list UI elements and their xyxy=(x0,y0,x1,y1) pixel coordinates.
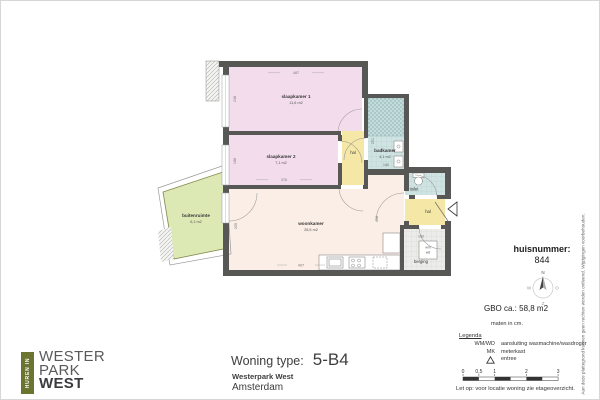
dim-slaapkamer2-breedte: 376 xyxy=(281,178,287,182)
area-badkamer: 4,1 m2 xyxy=(379,155,391,159)
huisnummer-label: huisnummer: xyxy=(497,244,587,254)
disclaimer-vertical: Aan deze plattegrond kunnen geen rechten… xyxy=(581,213,586,394)
project-name: Westerpark West xyxy=(232,372,293,381)
city-name: Amsterdam xyxy=(232,382,283,393)
area-buitenruimte: 6,1 m2 xyxy=(190,220,202,224)
washbasin-2 xyxy=(394,156,403,167)
room-toilet xyxy=(405,173,445,195)
label-badkamer: badkamer xyxy=(374,148,396,153)
label-buitenruimte: buitenruimte xyxy=(182,213,210,218)
woning-type-block: Woning type:5-B4 xyxy=(231,350,349,370)
compass-n: N xyxy=(541,270,544,275)
wd-label: wd xyxy=(426,251,430,255)
legend-value-entree: entree xyxy=(501,356,517,367)
label-slaapkamer2: slaapkamer 2 xyxy=(266,154,296,159)
dim-slaapkamer2-diepte: 188 xyxy=(233,158,237,164)
dim-slaapkamer1-breedte: 487 xyxy=(293,71,299,75)
logo-wordmark: WESTER PARK WEST xyxy=(39,350,105,391)
dim-woonkamer-diepte-links: 205 xyxy=(234,223,238,229)
legend-row-entree: entree xyxy=(459,356,587,367)
legend-key-mk: MK xyxy=(459,349,495,357)
logo-line-west: WEST xyxy=(39,377,105,391)
huisnummer-block: huisnummer: 844 xyxy=(497,244,587,265)
shaft-hatch xyxy=(206,61,219,101)
compass-w: W xyxy=(527,286,532,291)
floorplan-drawing: wm wd xyxy=(151,41,471,291)
dim-woonkamer-diepte-rechts: 408 xyxy=(375,216,379,222)
label-berging: berging xyxy=(414,259,429,264)
logo-green-bar: HUREN IN xyxy=(21,352,34,394)
maten-text: maten in cm. xyxy=(491,321,523,327)
label-hal-boven: hal xyxy=(350,150,356,155)
floorplan-sheet: wm wd xyxy=(0,0,600,400)
legend-value-mk: meterkast xyxy=(501,349,525,357)
entree-legend-triangle-icon xyxy=(486,356,495,364)
wm-wd-unit: wm wd xyxy=(419,241,437,259)
legend-key-entree xyxy=(459,356,495,367)
area-slaapkamer1: 11,6 m2 xyxy=(289,101,302,105)
woning-type-value: 5-B4 xyxy=(313,350,349,369)
legend-row-mk: MK meterkast xyxy=(459,349,587,357)
legend-title: Legenda xyxy=(459,333,587,339)
kitchen-cabinet xyxy=(383,233,400,253)
windows xyxy=(222,75,229,223)
legend: Legenda WM/WD aansluiting wasmachine/was… xyxy=(459,333,587,367)
kitchen-stove xyxy=(349,257,365,268)
legend-row-wmwd: WM/WD aansluiting wasmachine/wasdroger xyxy=(459,341,587,349)
area-slaapkamer2: 7,1 m2 xyxy=(275,161,287,165)
woning-type-label: Woning type: xyxy=(231,354,304,368)
kitchen-sink-basin xyxy=(329,259,341,266)
legend-value-wmwd: aansluiting wasmachine/wasdroger xyxy=(501,341,587,349)
dim-berging-breedte: 160 xyxy=(418,235,424,239)
dim-badkamer-breedte: 166 xyxy=(383,163,389,167)
compass-o: O xyxy=(555,286,559,291)
legend-key-wmwd: WM/WD xyxy=(459,341,495,349)
scale-bar: 0 0,5 1 2 3 xyxy=(456,368,571,384)
logo-huren-in: HUREN IN xyxy=(25,358,31,389)
room-slaapkamer1 xyxy=(229,67,362,131)
gbo-text: GBO ca.: 58,8 m2 xyxy=(484,304,548,313)
label-toilet: toilet xyxy=(410,187,420,192)
label-hal-entree: hal xyxy=(425,209,431,214)
entree-triangle-icon xyxy=(448,202,457,216)
label-woonkamer: woonkamer xyxy=(297,221,324,226)
shower-area xyxy=(368,98,404,136)
room-hal-boven xyxy=(342,131,364,185)
area-woonkamer: 28,5 m2 xyxy=(304,228,318,232)
label-slaapkamer1: slaapkamer 1 xyxy=(281,94,311,99)
dim-slaapkamer1-diepte: 238 xyxy=(233,96,237,102)
note-text: Let op: voor locatie woning zie etageove… xyxy=(456,386,575,392)
huisnummer-value: 844 xyxy=(497,255,587,265)
compass: N O Z W xyxy=(523,267,563,307)
dim-woonkamer-breedte: 407 xyxy=(298,264,304,268)
dim-badkamer-diepte: 251 xyxy=(371,138,375,144)
